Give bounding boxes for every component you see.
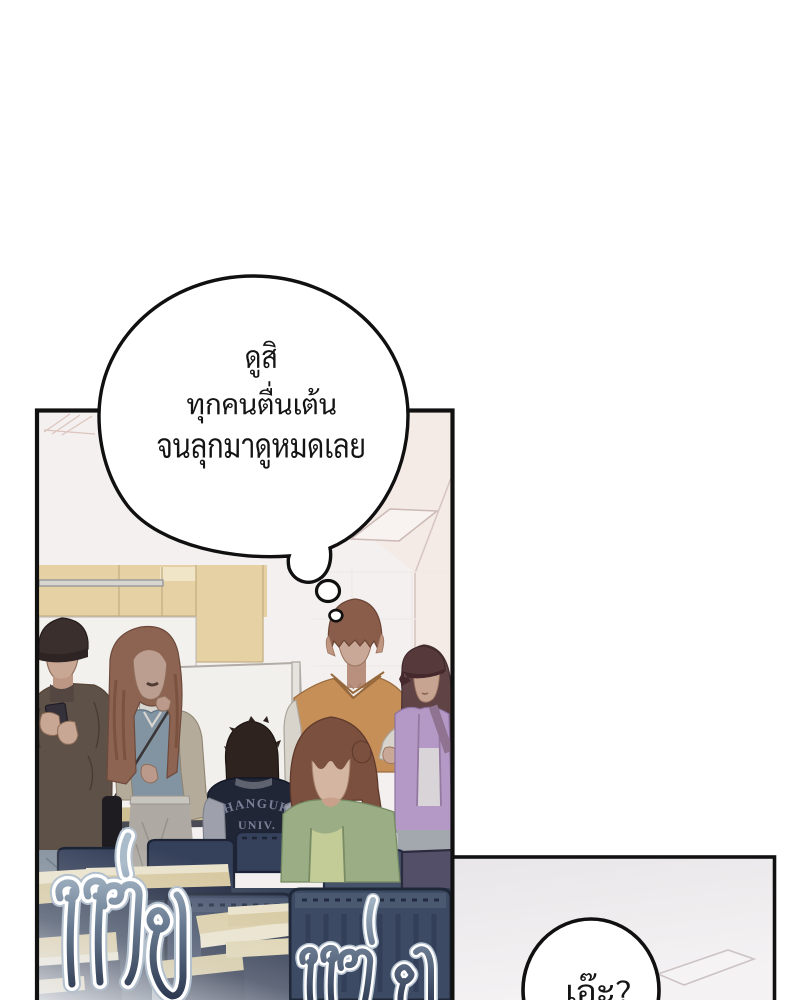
svg-text:UNIV.: UNIV. xyxy=(238,818,276,832)
